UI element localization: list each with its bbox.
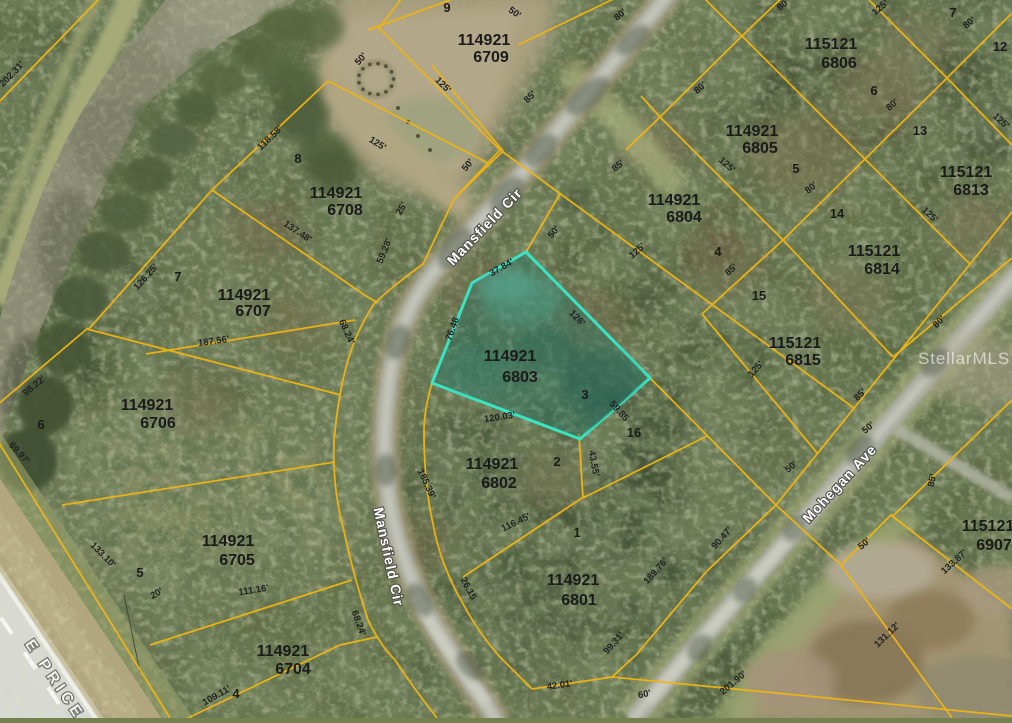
svg-text:6707: 6707 <box>235 303 271 320</box>
svg-text:114921: 114921 <box>726 123 779 140</box>
svg-text:114921: 114921 <box>458 32 511 49</box>
svg-text:114921: 114921 <box>202 533 255 550</box>
svg-text:6814: 6814 <box>864 261 900 278</box>
svg-text:6705: 6705 <box>219 552 255 569</box>
svg-text:6704: 6704 <box>275 661 311 678</box>
svg-text:4: 4 <box>232 686 240 701</box>
svg-text:7: 7 <box>174 269 181 284</box>
svg-text:6806: 6806 <box>821 55 857 72</box>
svg-text:2: 2 <box>553 454 560 469</box>
svg-text:115121: 115121 <box>940 164 993 181</box>
svg-text:114921: 114921 <box>466 456 519 473</box>
svg-text:6801: 6801 <box>561 592 597 609</box>
svg-text:6804: 6804 <box>666 209 702 226</box>
svg-text:114921: 114921 <box>257 643 310 660</box>
svg-text:5: 5 <box>792 161 799 176</box>
svg-text:StellarMLS: StellarMLS <box>918 349 1010 368</box>
svg-text:6: 6 <box>870 83 877 98</box>
svg-text:115121: 115121 <box>848 243 901 260</box>
svg-text:16: 16 <box>627 425 641 440</box>
svg-text:114921: 114921 <box>218 287 271 304</box>
svg-text:6: 6 <box>37 417 44 432</box>
svg-text:6708: 6708 <box>327 202 363 219</box>
svg-text:114921: 114921 <box>484 348 537 365</box>
svg-text:115121: 115121 <box>962 518 1012 535</box>
svg-text:13: 13 <box>913 123 927 138</box>
svg-text:115121: 115121 <box>805 36 858 53</box>
svg-text:4: 4 <box>714 244 722 259</box>
svg-text:6805: 6805 <box>742 140 778 157</box>
svg-text:6815: 6815 <box>785 352 821 369</box>
svg-text:114921: 114921 <box>547 572 600 589</box>
svg-text:15: 15 <box>752 288 766 303</box>
svg-text:8: 8 <box>294 151 301 166</box>
svg-text:6706: 6706 <box>140 415 176 432</box>
svg-text:5: 5 <box>136 565 143 580</box>
svg-text:12: 12 <box>993 39 1007 54</box>
svg-text:6813: 6813 <box>953 182 989 199</box>
svg-text:115121: 115121 <box>769 335 822 352</box>
svg-text:14: 14 <box>830 206 845 221</box>
svg-text:7: 7 <box>949 5 956 20</box>
svg-text:3: 3 <box>581 387 588 402</box>
svg-text:9: 9 <box>443 0 450 15</box>
svg-text:114921: 114921 <box>121 397 174 414</box>
svg-text:6802: 6802 <box>481 475 517 492</box>
svg-text:114921: 114921 <box>310 185 363 202</box>
svg-text:1: 1 <box>573 525 580 540</box>
svg-text:6709: 6709 <box>473 49 509 66</box>
svg-text:114921: 114921 <box>648 192 701 209</box>
svg-text:6803: 6803 <box>502 369 538 386</box>
svg-text:6907: 6907 <box>976 537 1012 554</box>
